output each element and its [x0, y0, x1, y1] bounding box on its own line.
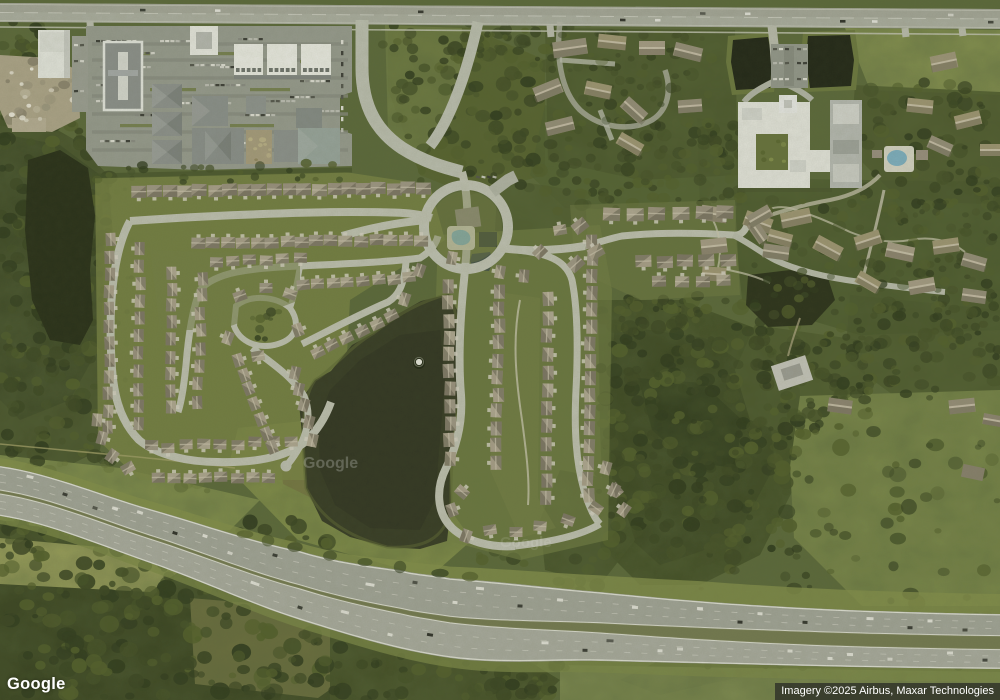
svg-text:Google: Google: [500, 534, 552, 551]
svg-text:Google: Google: [303, 455, 358, 472]
